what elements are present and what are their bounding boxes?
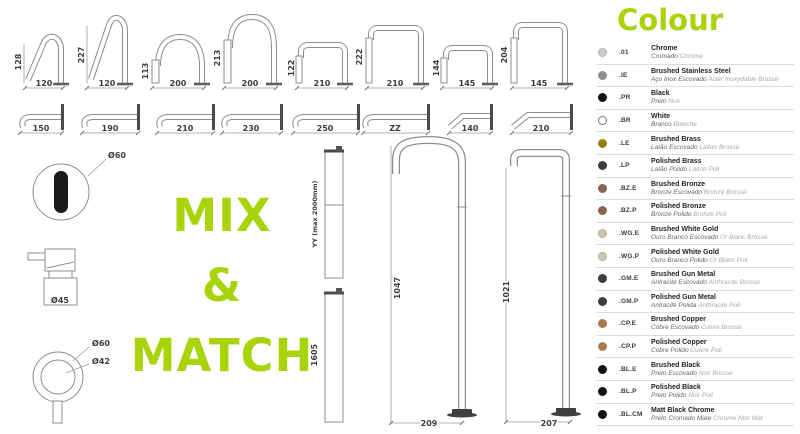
spout-top-6: 222 210 — [355, 28, 429, 88]
riser-cap — [336, 146, 342, 151]
sensor-top-view: Ø60 — [33, 150, 126, 220]
dim-height: 1047 — [393, 277, 402, 299]
legend-item: .BZ.E Brushed Bronze Bronze Escovado Bro… — [596, 178, 794, 201]
dim-height: 227 — [77, 47, 86, 64]
finish-code: .BL.E — [619, 366, 651, 373]
legend-item: .BL.CM Matt Black Chrome Preto Cromado M… — [596, 404, 794, 427]
dim-width: 150 — [33, 124, 50, 133]
finish-translation: Preto Polido Noir Poli — [651, 392, 713, 400]
legend-item: .CP.E Brushed Copper Cobre Escovado Cuiv… — [596, 313, 794, 336]
color-swatch — [598, 71, 607, 80]
finish-name: Polished Black — [651, 383, 713, 392]
finish-code: .WG.P — [619, 253, 651, 260]
dim-width: 190 — [102, 124, 119, 133]
spout-top-2: 227 120 — [77, 18, 133, 88]
wall-spout-5: 250 — [293, 104, 359, 133]
finish-translation: Preto Escovado Noir Brossé — [651, 370, 733, 378]
finish-name: White — [651, 112, 697, 121]
finish-name: Brushed Copper — [651, 315, 742, 324]
wall-spout-7: 140 — [449, 104, 492, 133]
dim-width: 207 — [541, 419, 558, 428]
finish-translation: Preto Cromado Mate Chrome Noir Mat — [651, 415, 763, 423]
dim-height: 128 — [14, 53, 23, 70]
finish-code: .PR — [619, 94, 651, 101]
legend-item: .LE Brushed Brass Latão Escovado Laiton … — [596, 132, 794, 155]
color-swatch — [598, 410, 607, 419]
finish-translation: Cobre Escovado Cuivre Brossé — [651, 324, 742, 332]
legend-item: .CP.P Polished Copper Cobre Polido Cuivr… — [596, 336, 794, 359]
dim-width: 210 — [387, 79, 404, 88]
finish-code: .BZ.E — [619, 185, 651, 192]
finish-translation: Ouro Branco Escovado Or Blanc Brossé — [651, 234, 767, 242]
finish-code: .BR — [619, 117, 651, 124]
slogan-line-1: MIX — [126, 181, 318, 251]
slogan-line-3: MATCH — [126, 321, 318, 391]
finish-code: .CP.P — [619, 343, 651, 350]
slogan-line-2: & — [126, 251, 318, 321]
spout-top-8: 204 145 — [500, 25, 573, 88]
dim-width: 209 — [421, 419, 438, 428]
wall-spout-8: 210 — [512, 104, 572, 133]
finish-translation: Antracite Polida Anthracite Poli — [651, 302, 740, 310]
spout-top-3: 113 200 — [141, 37, 210, 88]
colour-legend: Colour .01 Chrome Cromado Chrome .IE Bru… — [596, 4, 794, 426]
color-swatch — [598, 274, 607, 283]
dim-width: ZZ — [389, 124, 401, 133]
finish-code: .01 — [619, 49, 651, 56]
finish-translation: Ouro Branco Polido Or Blanc Poli — [651, 257, 747, 265]
dim-width: 120 — [36, 79, 53, 88]
legend-item: .GM.E Brushed Gun Metal Antracite Escova… — [596, 268, 794, 291]
finish-name: Polished Copper — [651, 338, 722, 347]
dim-height: 113 — [141, 63, 150, 80]
finish-code: .CP.E — [619, 320, 651, 327]
dim-width: 200 — [170, 79, 187, 88]
legend-item: .LP Polished Brass Latão Polido Laiton P… — [596, 155, 794, 178]
dim-diameter-outer: Ø60 — [92, 338, 110, 348]
wall-spout-1: 150 — [20, 104, 63, 133]
color-swatch — [598, 139, 607, 148]
color-swatch — [598, 48, 607, 57]
dim-diameter: Ø60 — [108, 150, 126, 160]
color-swatch — [598, 161, 607, 170]
finish-code: .LP — [619, 162, 651, 169]
legend-item: .01 Chrome Cromado Chrome — [596, 42, 794, 65]
color-swatch — [598, 387, 607, 396]
legend-title: Colour — [617, 4, 794, 37]
finish-code: .GM.P — [619, 298, 651, 305]
finish-name: Brushed Bronze — [651, 180, 746, 189]
finish-code: .LE — [619, 140, 651, 147]
dim-width: 210 — [177, 124, 194, 133]
finish-name: Brushed Stainless Steel — [651, 67, 778, 76]
riser-cap — [336, 288, 342, 293]
dim-height: 213 — [213, 50, 222, 67]
finish-name: Brushed Gun Metal — [651, 270, 760, 279]
finish-translation: Branco Blanche — [651, 121, 697, 129]
legend-item: .PR Black Preto Noir — [596, 87, 794, 110]
wall-spout-4: 230 — [222, 104, 282, 133]
finish-translation: Preto Noir — [651, 98, 680, 106]
sensor-slot — [54, 171, 68, 213]
dim-width: 210 — [533, 124, 550, 133]
dim-width: 200 — [242, 79, 259, 88]
dim-width: 140 — [462, 124, 479, 133]
color-swatch — [598, 229, 607, 238]
color-swatch — [598, 365, 607, 374]
dim-height: 1021 — [502, 280, 511, 303]
dim-height: 204 — [500, 46, 509, 63]
finish-translation: Aço Inox Escovado Acier Inoxydable Bross… — [651, 76, 778, 84]
finish-name: Brushed White Gold — [651, 225, 767, 234]
floor-spout-square: 1021 207 — [502, 153, 581, 428]
legend-item: .WG.E Brushed White Gold Ouro Branco Esc… — [596, 223, 794, 246]
finish-name: Black — [651, 89, 680, 98]
finish-translation: Cobre Polido Cuivre Poli — [651, 347, 722, 355]
finish-name: Polished Brass — [651, 157, 719, 166]
legend-item: .BR White Branco Blanche — [596, 110, 794, 133]
finish-name: Brushed Brass — [651, 135, 739, 144]
wall-spout-6: ZZ — [363, 104, 429, 133]
dim-width: 230 — [243, 124, 260, 133]
finish-code: .GM.E — [619, 275, 651, 282]
spout-top-4: 213 200 — [213, 17, 282, 88]
dim-height: 122 — [287, 60, 296, 77]
handle-top-view: Ø60 Ø42 — [33, 338, 110, 423]
color-swatch — [598, 93, 607, 102]
dim-height: 144 — [432, 59, 441, 76]
mix-and-match-slogan: MIX & MATCH — [126, 181, 318, 391]
wall-spout-2: 190 — [82, 104, 139, 133]
finish-translation: Bronze Escovado Bronze Brossé — [651, 189, 746, 197]
finish-translation: Bronze Polido Bronze Poli — [651, 211, 727, 219]
finish-name: Polished Bronze — [651, 202, 727, 211]
spout-top-7: 144 145 — [432, 48, 498, 88]
finish-code: .BZ.P — [619, 207, 651, 214]
dim-diameter: Ø45 — [51, 295, 69, 305]
finish-name: Matt Black Chrome — [651, 406, 763, 415]
finish-code: .BL.P — [619, 388, 651, 395]
legend-item: .BL.P Polished Black Preto Polido Noir P… — [596, 381, 794, 404]
wall-spout-3: 210 — [157, 104, 214, 133]
catalog-page: 128 120 227 120 113 200 213 200 — [0, 0, 800, 434]
dim-diameter-inner: Ø42 — [92, 356, 110, 366]
legend-item: .IE Brushed Stainless Steel Aço Inox Esc… — [596, 65, 794, 88]
color-swatch — [598, 184, 607, 193]
legend-item: .BZ.P Polished Bronze Bronze Polido Bron… — [596, 200, 794, 223]
dim-width: 120 — [99, 79, 116, 88]
finish-translation: Antracite Escovado Anthracite Brossé — [651, 279, 760, 287]
finish-name: Brushed Black — [651, 361, 733, 370]
dim-width: 145 — [459, 79, 476, 88]
dim-width: 250 — [317, 124, 334, 133]
color-swatch — [598, 342, 607, 351]
finish-name: Chrome — [651, 44, 703, 53]
color-swatch — [598, 252, 607, 261]
dim-height: 222 — [355, 49, 364, 66]
dim-width: 210 — [314, 79, 331, 88]
finish-translation: Latão Polido Laiton Poli — [651, 166, 719, 174]
mixer-side-view: Ø45 — [28, 249, 77, 305]
finish-code: .WG.E — [619, 230, 651, 237]
spout-top-5: 122 210 — [287, 45, 353, 88]
dim-width: 145 — [531, 79, 548, 88]
finish-code: .BL.CM — [619, 411, 651, 418]
color-swatch — [598, 116, 607, 125]
legend-item: .GM.P Polished Gun Metal Antracite Polid… — [596, 291, 794, 314]
finish-name: Polished White Gold — [651, 248, 747, 257]
finish-translation: Latão Escovado Laiton Brossé — [651, 144, 739, 152]
finish-name: Polished Gun Metal — [651, 293, 740, 302]
color-swatch — [598, 206, 607, 215]
color-swatch — [598, 319, 607, 328]
finish-code: .IE — [619, 72, 651, 79]
finish-translation: Cromado Chrome — [651, 53, 703, 61]
spout-top-1: 128 120 — [14, 37, 69, 88]
legend-item: .WG.P Polished White Gold Ouro Branco Po… — [596, 245, 794, 268]
floor-spout-curved: 1047 209 — [391, 140, 477, 428]
color-swatch — [598, 297, 607, 306]
legend-item: .BL.E Brushed Black Preto Escovado Noir … — [596, 358, 794, 381]
